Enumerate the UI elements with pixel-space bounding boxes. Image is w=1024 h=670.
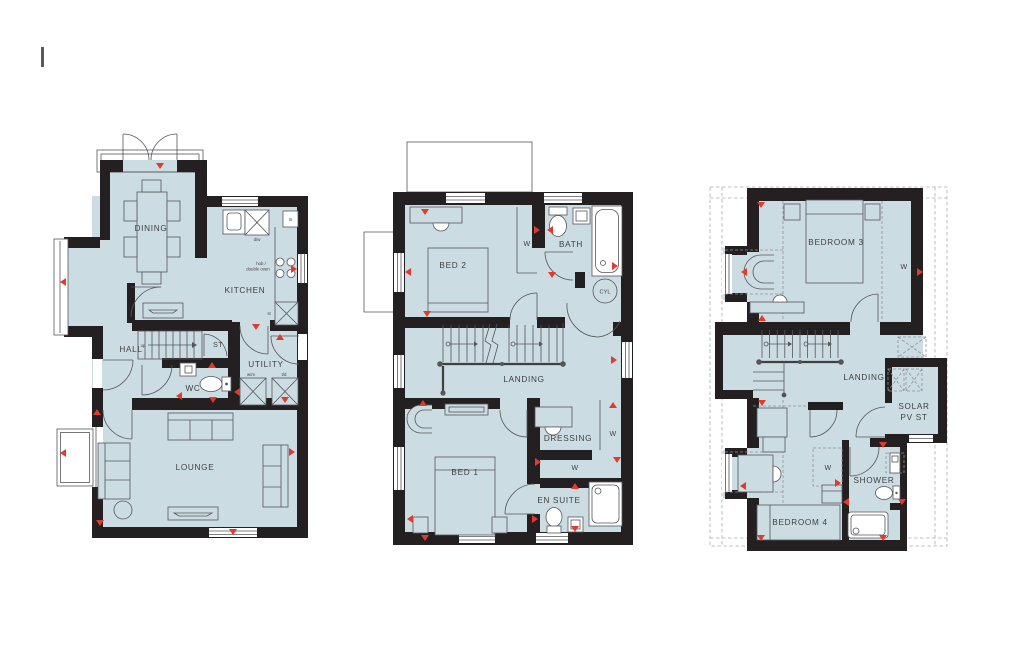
label-w-dressing: W — [609, 431, 616, 438]
label-bed1: BED 1 — [451, 468, 478, 477]
label-dressing: DRESSING — [544, 434, 592, 443]
label-landing-1: LANDING — [503, 375, 544, 384]
first-floor-plan: BED 2 W BATH CYL LANDING DRESSING W W BE… — [355, 130, 645, 555]
label-wc: WC — [185, 384, 200, 393]
label-dw: d/w — [254, 237, 262, 242]
label-bath: BATH — [559, 240, 583, 249]
label-w-nook: W — [571, 465, 578, 472]
label-w-bed3: W — [900, 264, 907, 271]
label-dining: DINING — [135, 224, 168, 233]
label-hob1: hob / — [256, 261, 266, 266]
label-lounge: LOUNGE — [176, 463, 215, 472]
label-landing-2: LANDING — [843, 373, 884, 382]
label-w-bed4: W — [824, 465, 831, 472]
label-up: up — [141, 343, 146, 348]
label-shower: SHOWER — [853, 476, 894, 485]
corner-tick — [41, 47, 44, 67]
floorplan-sheet: DINING KITCHEN HALL ST WC UTILITY LOUNGE… — [0, 0, 1024, 670]
label-td: t/d — [282, 372, 287, 377]
second-floor-plan: BEDROOM 3 W LANDING SOLAR PV ST W SHOWER… — [695, 180, 957, 560]
label-bedroom3: BEDROOM 3 — [808, 238, 863, 247]
label-solar-1: SOLAR — [898, 402, 929, 411]
label-bed2: BED 2 — [439, 261, 466, 270]
label-boiler: B — [289, 217, 292, 222]
label-bedroom4: BEDROOM 4 — [772, 518, 827, 527]
label-cyl: CYL — [600, 290, 611, 296]
label-solar-2: PV ST — [900, 413, 927, 422]
label-st: ST — [213, 342, 223, 349]
label-hob2: double oven — [246, 267, 270, 272]
label-utility: UTILITY — [248, 360, 283, 369]
label-ensuite: EN SUITE — [537, 496, 580, 505]
ground-floor-plan: DINING KITCHEN HALL ST WC UTILITY LOUNGE… — [40, 125, 320, 555]
label-w-bed2: W — [523, 241, 530, 248]
label-wm: w/m — [247, 372, 255, 377]
label-hall: HALL — [119, 345, 142, 354]
label-kitchen: KITCHEN — [225, 286, 266, 295]
